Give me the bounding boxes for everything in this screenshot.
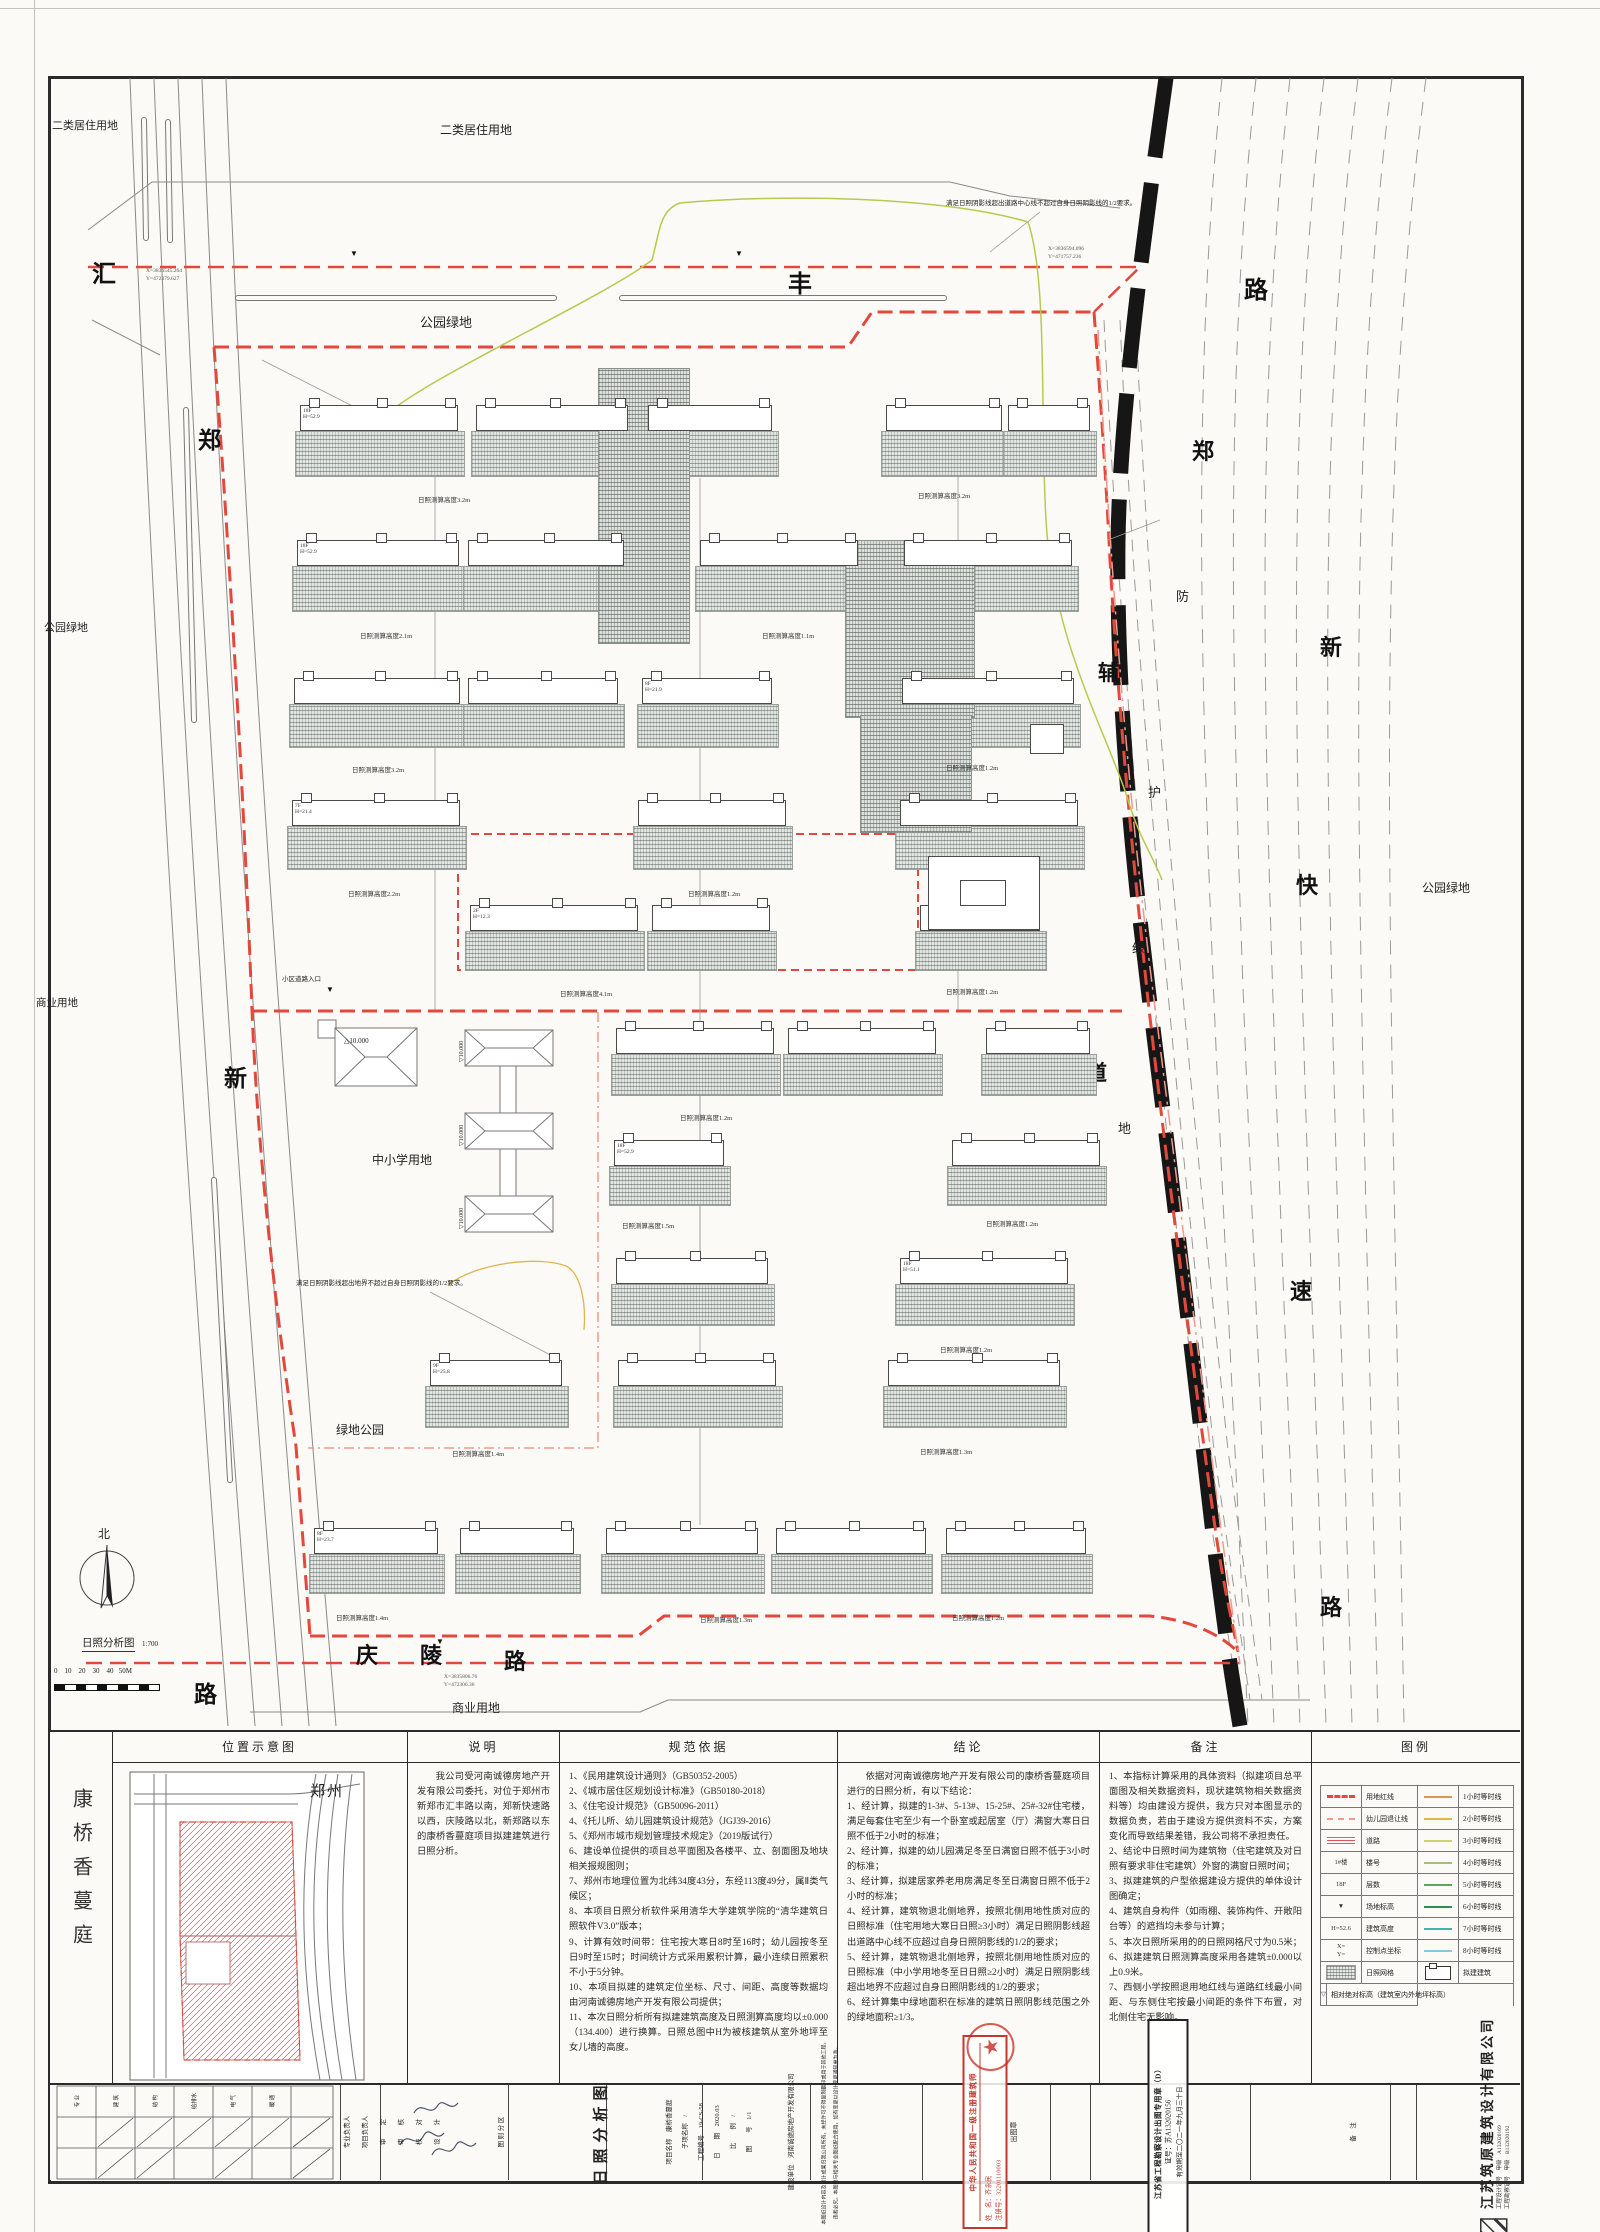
legend-row: 4小时等时线 <box>1418 1852 1513 1874</box>
list-item: 2、结论中日照时间为建筑物（住宅建筑及对日照有要求非住宅建筑）外窗的满窗日照时间… <box>1109 1845 1302 1875</box>
panel-col-notes: 备注 1、本指标计算采用的具体资料（拟建项目总平面图及相关数据资料，现状建筑物相… <box>1100 1732 1312 2085</box>
conclusion-intro: 依据对河南诚德房地产开发有限公司的康桥香蔓庭项目进行的日照分析，有以下结论： <box>847 1770 1090 1800</box>
roof-tick <box>439 1353 450 1363</box>
col-title-legend: 图例 <box>1312 1732 1520 1763</box>
title-block-field: 子项名称 / <box>679 2115 689 2149</box>
north-label: 北 <box>98 1528 110 1541</box>
residential-building <box>788 1028 936 1054</box>
legend-row: 8小时等时线 <box>1418 1940 1513 1962</box>
shadow-height-label: 日照测算高度1.3m <box>700 1614 752 1624</box>
building-floor-label: 8F H=23.7 <box>317 1531 334 1544</box>
legend-symbol <box>1418 1874 1459 1895</box>
sun-shadow-band <box>455 1554 581 1594</box>
coord-label: Y=471757.236 <box>1048 254 1081 260</box>
legend-label: 日照网格 <box>1362 1968 1417 1978</box>
residential-building <box>476 405 628 431</box>
shadow-height-label: 日照测算高度1.2m <box>946 762 998 772</box>
building-floor-label: 18F H=52.9 <box>303 408 320 421</box>
roof-tick <box>690 1251 701 1261</box>
roof-tick <box>986 671 997 681</box>
sun-shadow-band <box>895 1284 1075 1326</box>
roof-tick <box>711 1133 722 1143</box>
legend-symbol: ▼ <box>1321 1896 1362 1917</box>
coord-label: X=3836545.264 <box>146 268 182 274</box>
legend-symbol: 18F <box>1321 1874 1362 1895</box>
list-item: 4、《托儿所、幼儿园建筑设计规范》（JGJ39-2016） <box>569 1815 828 1830</box>
legend-symbol <box>1321 1786 1362 1807</box>
legend-symbol <box>1418 1918 1459 1939</box>
sun-shadow-band <box>783 1054 943 1096</box>
residential-building <box>902 678 1074 704</box>
drawing-sheet: 二类居住用地二类居住用地公园绿地公园绿地公园绿地绿地公园商业用地商业用地中小学用… <box>0 0 1600 2232</box>
legend-row: 6小时等时线 <box>1418 1896 1513 1918</box>
sun-shadow-band <box>947 1166 1107 1206</box>
title-block-field: 违者必究。本图须与相关专业图纸配合使用，如有变更以设计变更通知单为准。 <box>833 2044 840 2219</box>
company-logo-icon <box>1479 2217 1509 2232</box>
roof-tick <box>303 671 314 681</box>
roof-tick <box>301 793 312 803</box>
residential-building: 18F H=52.9 <box>297 540 459 566</box>
road-name-char: 路 <box>504 1650 526 1674</box>
legend-symbol <box>1418 1830 1459 1851</box>
title-block-divider <box>922 2085 923 2180</box>
building-floor-label: 2F H=12.3 <box>473 908 490 921</box>
legend-row: 18F层数 <box>1321 1874 1417 1896</box>
landuse-label: 公园绿地 <box>44 622 88 634</box>
list-item: 1、经计算，拟建的1-3#、5-13#、15-25#、25#-32#住宅楼，满足… <box>847 1800 1090 1845</box>
roof-tick <box>309 398 320 408</box>
roof-tick <box>895 398 906 408</box>
title-block-divider <box>508 2085 509 2180</box>
residential-building: 8F H=21.9 <box>642 678 772 704</box>
residential-building: 9F H=25.8 <box>430 1360 562 1386</box>
legend-symbol <box>1418 1940 1459 1961</box>
list-item: 2、经计算，拟建的幼儿园满足冬至日满窗日照不低于3小时的标准； <box>847 1845 1090 1875</box>
shadow-height-label: 日照测算高度2.2m <box>348 888 400 898</box>
landuse-label: 商业用地 <box>36 998 78 1010</box>
roof-tick <box>755 1251 766 1261</box>
notes-list: 1、本指标计算采用的具体资料（拟建项目总平面图及相关数据资料，现状建筑物相关数据… <box>1100 1763 1311 2033</box>
roof-tick <box>909 793 920 803</box>
legend-row: X= Y=控制点坐标 <box>1321 1940 1417 1962</box>
roof-tick <box>849 1521 860 1531</box>
company-cert-1: 工程设计证号 甲级 A132020169 <box>1496 2017 1504 2209</box>
landuse-label: 公园绿地 <box>1422 882 1470 895</box>
greenbelt-char: 地 <box>1118 1122 1131 1136</box>
residential-building <box>606 1528 758 1554</box>
sun-shadow-band <box>883 1386 1067 1428</box>
residential-building <box>616 1258 768 1284</box>
greenbelt-char: 绿 <box>1132 942 1145 956</box>
stamp-black-number: 证号：苏A132020156 <box>1164 2029 1174 2232</box>
roof-tick <box>785 1521 796 1531</box>
roof-tick <box>625 1021 636 1031</box>
map-title: 日照分析图 <box>82 1638 135 1652</box>
shadow-height-label: 日照测算高度3.2m <box>418 494 470 504</box>
greenbelt-char: 防 <box>1176 590 1189 604</box>
panel-col-conclusion: 结论 依据对河南诚德房地产开发有限公司的康桥香蔓庭项目进行的日照分析，有以下结论… <box>838 1732 1100 2085</box>
sun-shadow-band <box>292 566 466 612</box>
sun-shadow-band <box>465 931 645 971</box>
road-name-char: 庆 <box>356 1644 378 1668</box>
title-block-divider <box>1390 2085 1391 2180</box>
sun-shadow-band <box>609 1166 731 1206</box>
roof-tick <box>323 1521 334 1531</box>
roof-tick <box>550 398 561 408</box>
roof-tick <box>911 671 922 681</box>
legend-label: 建筑高度 <box>1362 1924 1417 1934</box>
residential-building: 7F H=21.4 <box>292 800 460 826</box>
public-building <box>960 880 1006 906</box>
building-floor-label: 18F H=51.1 <box>903 1261 920 1274</box>
title-block-divider <box>1050 2085 1051 2180</box>
list-item: 5、本次日照所采用的的日照网格尺寸为0.5米； <box>1109 1936 1302 1951</box>
residential-building <box>776 1528 926 1554</box>
signature-grid-label: 专 业 <box>73 2095 81 2107</box>
level-label: ▽10.000 <box>459 1125 466 1146</box>
roof-tick <box>757 898 768 908</box>
roof-tick <box>845 533 856 543</box>
roof-tick <box>1024 1133 1035 1143</box>
building-floor-label: 9F H=25.8 <box>433 1363 450 1376</box>
legend-row: 拟建建筑 <box>1418 1962 1513 1984</box>
title-block-field: 图 则 分 区 <box>495 2117 505 2148</box>
legend-label: 8小时等时线 <box>1459 1946 1513 1956</box>
shadow-height-label: 日照测算高度1.2m <box>688 888 740 898</box>
roof-tick <box>759 398 770 408</box>
roof-tick <box>552 898 563 908</box>
railway-line <box>1118 78 1240 1726</box>
residential-building <box>468 678 618 704</box>
company-name: 江苏筑原建筑设计有限公司 <box>1476 2017 1496 2209</box>
shadow-height-label: 日照测算高度1.3m <box>920 1446 972 1456</box>
roof-tick <box>695 1353 706 1363</box>
roof-tick <box>777 533 788 543</box>
list-item: 6、建设单位提供的项目总平面图及各楼平、立、剖面图及地块相关报规图则； <box>569 1845 828 1875</box>
legend-symbol <box>1418 1962 1459 1983</box>
roof-tick <box>1065 793 1076 803</box>
list-item: 6、经计算集中绿地面积在标准的建筑日照阴影线范围之外的绿地面积≥1/3。 <box>847 1996 1090 2026</box>
title-block-field: 专业负责人 <box>341 2116 351 2149</box>
roof-tick <box>897 1353 908 1363</box>
title-block-field: 审 核 <box>395 2119 405 2145</box>
residential-building: 8F H=23.7 <box>314 1528 438 1554</box>
legend-row: 1小时等时线 <box>1418 1786 1513 1808</box>
title-block-divider <box>1090 2085 1091 2180</box>
landuse-label: 商业用地 <box>452 1702 500 1715</box>
sun-shadow-band <box>941 1554 1093 1594</box>
residential-building <box>946 1528 1086 1554</box>
shadow-height-label: 日照测算高度4.1m <box>560 988 612 998</box>
legend-row: 3小时等时线 <box>1418 1830 1513 1852</box>
legend-row: 用地红线 <box>1321 1786 1417 1808</box>
panel-col-location: 位置示意图 郑州 <box>112 1732 408 2085</box>
roof-tick <box>995 1021 1006 1031</box>
list-item: 6、拟建建筑日照测算高度采用各建筑±0.000以上0.9米。 <box>1109 1951 1302 1981</box>
roof-tick <box>479 898 490 908</box>
roof-tick <box>615 1521 626 1531</box>
list-item: 3、拟建建筑的户型依据建设方提供的单体设计图确定； <box>1109 1875 1302 1905</box>
landuse-label: 绿地公园 <box>336 1424 384 1437</box>
legend-symbol <box>1321 1808 1362 1829</box>
coord-label: X=3836594.096 <box>1048 246 1084 252</box>
roof-tick <box>477 533 488 543</box>
list-item: 3、《住宅设计规范》（GB50096-2011） <box>569 1800 828 1815</box>
shadow-height-label: 日照测算高度1.2m <box>986 1218 1038 1228</box>
sun-shadow-band <box>611 1284 775 1326</box>
roof-tick <box>1077 398 1088 408</box>
title-block-field: 图 号 1/1 <box>743 2112 753 2153</box>
public-building <box>1030 724 1064 754</box>
landuse-label: 中小学用地 <box>372 1154 432 1167</box>
residential-building <box>1008 405 1090 431</box>
legend-row: ▽相对绝对标高（建筑室内外地坪标高） <box>1321 1984 1417 2006</box>
building-floor-label: 18F H=52.9 <box>617 1143 634 1156</box>
title-block-field: 工程编号 19-CS-58 <box>695 2103 705 2161</box>
list-item: 2、《城市居住区规划设计标准》（GB50180-2018） <box>569 1785 828 1800</box>
legend-symbol <box>1321 1962 1362 1983</box>
road-name-char: 快 <box>1296 874 1318 898</box>
legend-row: 2小时等时线 <box>1418 1808 1513 1830</box>
residential-building: 18F H=51.1 <box>900 1258 1068 1284</box>
roof-tick <box>446 533 457 543</box>
list-item: 4、经计算，建筑物退北侧地界，按照北侧用地性质对应的日照标准（住宅用地大寒日日照… <box>847 1905 1090 1950</box>
corner-marker: ▼ <box>326 986 334 995</box>
level-label: ▽10.000 <box>459 1208 466 1229</box>
legend-label: 4小时等时线 <box>1459 1858 1513 1868</box>
roof-tick <box>986 533 997 543</box>
signature-grid-label: 给排水 <box>190 2093 198 2110</box>
title-block-divider <box>1416 2085 1417 2180</box>
shadow-height-label: 日照测算高度3.2m <box>352 764 404 774</box>
sun-shadow-band <box>287 826 467 870</box>
roof-tick <box>661 898 672 908</box>
col-title-location: 位置示意图 <box>112 1732 407 1763</box>
legend-label: 楼号 <box>1362 1858 1417 1868</box>
roof-tick <box>375 671 386 681</box>
panel-col-code-basis: 规范依据 1、《民用建筑设计通则》（GB50352-2005）2、《城市居住区规… <box>560 1732 838 2085</box>
roof-tick <box>549 1353 560 1363</box>
roof-tick <box>987 793 998 803</box>
list-item: 5、经计算，建筑物退北侧地界，按照北侧用地性质对应的日照标准（中小学用地冬至日日… <box>847 1951 1090 1996</box>
stamp-black-title: 江苏省工程勘察设计出图专用章（D） <box>1153 2029 1164 2232</box>
roof-tick <box>955 1521 966 1531</box>
roof-tick <box>1047 1353 1058 1363</box>
list-item: 7、西侧小学按照退用地红线与道路红线最小间距、与东侧住宅按最小间距的条件下布置，… <box>1109 1981 1302 2026</box>
sun-shadow-band <box>637 704 779 748</box>
legend-row: 5小时等时线 <box>1418 1874 1513 1896</box>
title-block-field: 备 注 <box>1347 2122 1357 2142</box>
legend-symbol: X= Y= <box>1321 1940 1362 1961</box>
sun-shadow-band <box>647 931 777 971</box>
roof-tick <box>611 533 622 543</box>
list-item: 3、经计算，拟建居家养老用房满足冬至日满窗日照不低于2小时的标准； <box>847 1875 1090 1905</box>
residential-building <box>952 1140 1100 1166</box>
road-name-char: 辅 <box>1098 662 1119 685</box>
roof-tick <box>1059 533 1070 543</box>
shadow-height-label: 日照测算高度1.4m <box>452 1448 504 1458</box>
school-buildings <box>318 1020 553 1232</box>
stamp-red-title: 中华人民共和国一级注册建筑师 <box>968 2043 981 2221</box>
shadow-height-label: 日照测算高度1.4m <box>336 1612 388 1622</box>
roof-tick <box>680 1521 691 1531</box>
entry-label: 小区道路入口 <box>282 976 321 983</box>
sun-shadow-band <box>611 1054 781 1096</box>
signature-grid-label: 暖 通 <box>268 2095 276 2107</box>
coord-label: Y=472379.627 <box>146 276 179 282</box>
legend-row: 幼儿园退让线 <box>1321 1808 1417 1830</box>
roof-tick <box>615 398 626 408</box>
shadow-height-label: 日照测算高度1.2m <box>952 1612 1004 1622</box>
title-block-field: 项目名称 康桥香蔓庭 <box>663 2100 673 2165</box>
list-item: 11、本次日照分析所有拟建建筑高度及日照测算高度均以±0.000（134.400… <box>569 2011 828 2056</box>
sun-shadow-band <box>295 431 465 477</box>
roof-tick <box>425 1521 436 1531</box>
list-item: 8、本项目日照分析软件采用清华大学建筑学院的“清华建筑日照软件V3.0”版本； <box>569 1905 828 1935</box>
sun-shadow-band <box>601 1554 765 1594</box>
building-floor-label: 7F H=21.4 <box>295 803 312 816</box>
coord-label: Y=472306.36 <box>444 1682 474 1688</box>
sun-shadow-band <box>613 1386 783 1428</box>
roof-tick <box>447 793 458 803</box>
residential-building <box>294 678 460 704</box>
col-title-notes: 备注 <box>1100 1732 1311 1763</box>
roof-tick <box>447 671 458 681</box>
roof-tick <box>623 1133 634 1143</box>
north-arrow <box>80 1545 134 1608</box>
minimap-city-label: 郑州 <box>310 1780 344 1801</box>
residential-building <box>888 1360 1060 1386</box>
legend-label: 3小时等时线 <box>1459 1836 1513 1846</box>
roof-tick <box>377 398 388 408</box>
roof-tick <box>541 671 552 681</box>
legend-label: 层数 <box>1362 1880 1417 1890</box>
level-label: ▽10.000 <box>459 1041 466 1062</box>
residential-building <box>900 800 1078 826</box>
sun-shadow-band <box>915 931 1047 971</box>
sun-shadow-band <box>633 826 793 870</box>
roof-tick <box>961 1133 972 1143</box>
list-item: 10、本项目拟建的建筑定位坐标、尺寸、间距、高度等数据均由河南诚德房地产开发有限… <box>569 1981 828 2011</box>
sun-shadow-band <box>881 431 1009 477</box>
title-block-field: 建设单位 河南诚德房地产开发有限公司 <box>785 2074 795 2191</box>
residential-building: 18F H=52.9 <box>614 1140 724 1166</box>
roof-tick <box>625 1251 636 1261</box>
shadow-height-label: 日照测算高度1.2m <box>940 1344 992 1354</box>
shadow-height-label: 日照测算高度1.1m <box>762 630 814 640</box>
roof-tick <box>1061 671 1072 681</box>
roof-tick <box>647 793 658 803</box>
road-name-char: 新 <box>1320 636 1342 660</box>
shadow-height-label: 日照测算高度1.5m <box>622 1220 674 1230</box>
road-name-char: 郑 <box>198 428 221 453</box>
shadow-note: 满足日照阴影线超出地界不超过自身日照阴影线的1/2要求。 <box>296 1280 467 1287</box>
panel-col-description: 说明 我公司受河南诚德房地产开发有限公司委托，对位于郑州市新郑市汇丰路以南，郑新… <box>408 1732 560 2085</box>
legend-symbol <box>1321 1830 1362 1851</box>
roof-tick <box>761 1021 772 1031</box>
col-title-description: 说明 <box>408 1732 559 1763</box>
legend-symbol: H=52.6 <box>1321 1918 1362 1939</box>
sun-shadow-band <box>771 1554 933 1594</box>
shadow-note: 满足日照阴影线超出道路中心线不超过自身日照阴影线的1/2要求。 <box>946 200 1136 207</box>
roof-tick <box>445 398 456 408</box>
title-block-divider <box>810 2085 811 2180</box>
roof-tick <box>561 1521 572 1531</box>
legend-label: 2小时等时线 <box>1459 1814 1513 1824</box>
roof-tick <box>759 671 770 681</box>
legend-row: 日照网格 <box>1321 1962 1417 1984</box>
legend-table-left: 用地红线幼儿园退让线道路1#楼楼号18F层数▼场地标高H=52.6建筑高度X= … <box>1320 1785 1418 2006</box>
greenbelt-char: 护 <box>1148 786 1161 800</box>
building-floor-label: 8F H=21.9 <box>645 681 662 694</box>
residential-building <box>652 905 770 931</box>
shadow-height-label: 日照测算高度1.2m <box>946 986 998 996</box>
roof-tick <box>913 533 924 543</box>
residential-building <box>886 405 1002 431</box>
roof-tick <box>477 671 488 681</box>
shadow-height-label: 日照测算高度3.2m <box>918 490 970 500</box>
legend-label: 拟建建筑 <box>1459 1968 1513 1978</box>
road-name-char: 陵 <box>420 1644 442 1668</box>
roof-tick <box>709 533 720 543</box>
roof-tick <box>1017 398 1028 408</box>
sun-shadow-band <box>463 704 625 748</box>
signature-grid-label: 结 构 <box>151 2095 159 2107</box>
roof-tick <box>1055 1251 1066 1261</box>
legend-symbol <box>1418 1786 1459 1807</box>
signature-grid-label: 电 气 <box>229 2095 237 2107</box>
bottom-panel: 康桥香蔓庭 位置示意图 郑州 说明 我公司受河南 <box>50 1730 1520 2085</box>
roof-tick <box>972 1353 983 1363</box>
residential-building <box>468 540 624 566</box>
list-item: 5、《郑州市城市规划管理技术规定》（2019版试行） <box>569 1830 828 1845</box>
corner-marker: ▼ <box>350 250 358 259</box>
residential-building <box>986 1028 1090 1054</box>
legend-label: 控制点坐标 <box>1362 1946 1417 1956</box>
scale-numbers: 0 10 20 30 40 50M <box>54 1668 132 1676</box>
sun-shadow-band <box>1003 431 1097 477</box>
legend-symbol <box>1418 1896 1459 1917</box>
shadow-height-label: 日照测算高度2.1m <box>360 630 412 640</box>
legend-row: 道路 <box>1321 1830 1417 1852</box>
roof-tick <box>923 1021 934 1031</box>
roof-tick <box>989 398 1000 408</box>
drawing-release-stamp: 江苏省工程勘察设计出图专用章（D） 证号：苏A132020156 有效期至二〇二… <box>1148 2019 1189 2232</box>
legend-label: 5小时等时线 <box>1459 1880 1513 1890</box>
yellow-contour-line <box>448 1261 584 1330</box>
conclusion-list: 1、经计算，拟建的1-3#、5-13#、15-25#、25#-32#住宅楼，满足… <box>847 1800 1090 2026</box>
sun-shadow-band <box>425 1386 569 1428</box>
description-text: 我公司受河南诚德房地产开发有限公司委托，对位于郑州市新郑市汇丰路以南，郑新快速路… <box>408 1763 559 1867</box>
sun-shadow-band <box>309 1554 445 1594</box>
legend-label: 场地标高 <box>1362 1902 1417 1912</box>
residential-building <box>648 405 772 431</box>
roof-tick <box>544 533 555 543</box>
roof-tick <box>763 1353 774 1363</box>
list-item: 1、《民用建筑设计通则》（GB50352-2005） <box>569 1770 828 1785</box>
roof-tick <box>773 793 784 803</box>
roof-tick <box>625 898 636 908</box>
roof-tick <box>693 1021 704 1031</box>
legend-label: 用地红线 <box>1362 1792 1417 1802</box>
road-name-char: 速 <box>1290 1280 1312 1304</box>
roof-tick <box>909 1251 920 1261</box>
residential-building <box>700 540 858 566</box>
legend-symbol <box>1418 1852 1459 1873</box>
list-item: 7、郑州市地理位置为北纬34度43分，东经113度49分，属Ⅱ类气候区； <box>569 1875 828 1905</box>
corner-marker: ▼ <box>735 250 743 259</box>
legend-label: 7小时等时线 <box>1459 1924 1513 1934</box>
